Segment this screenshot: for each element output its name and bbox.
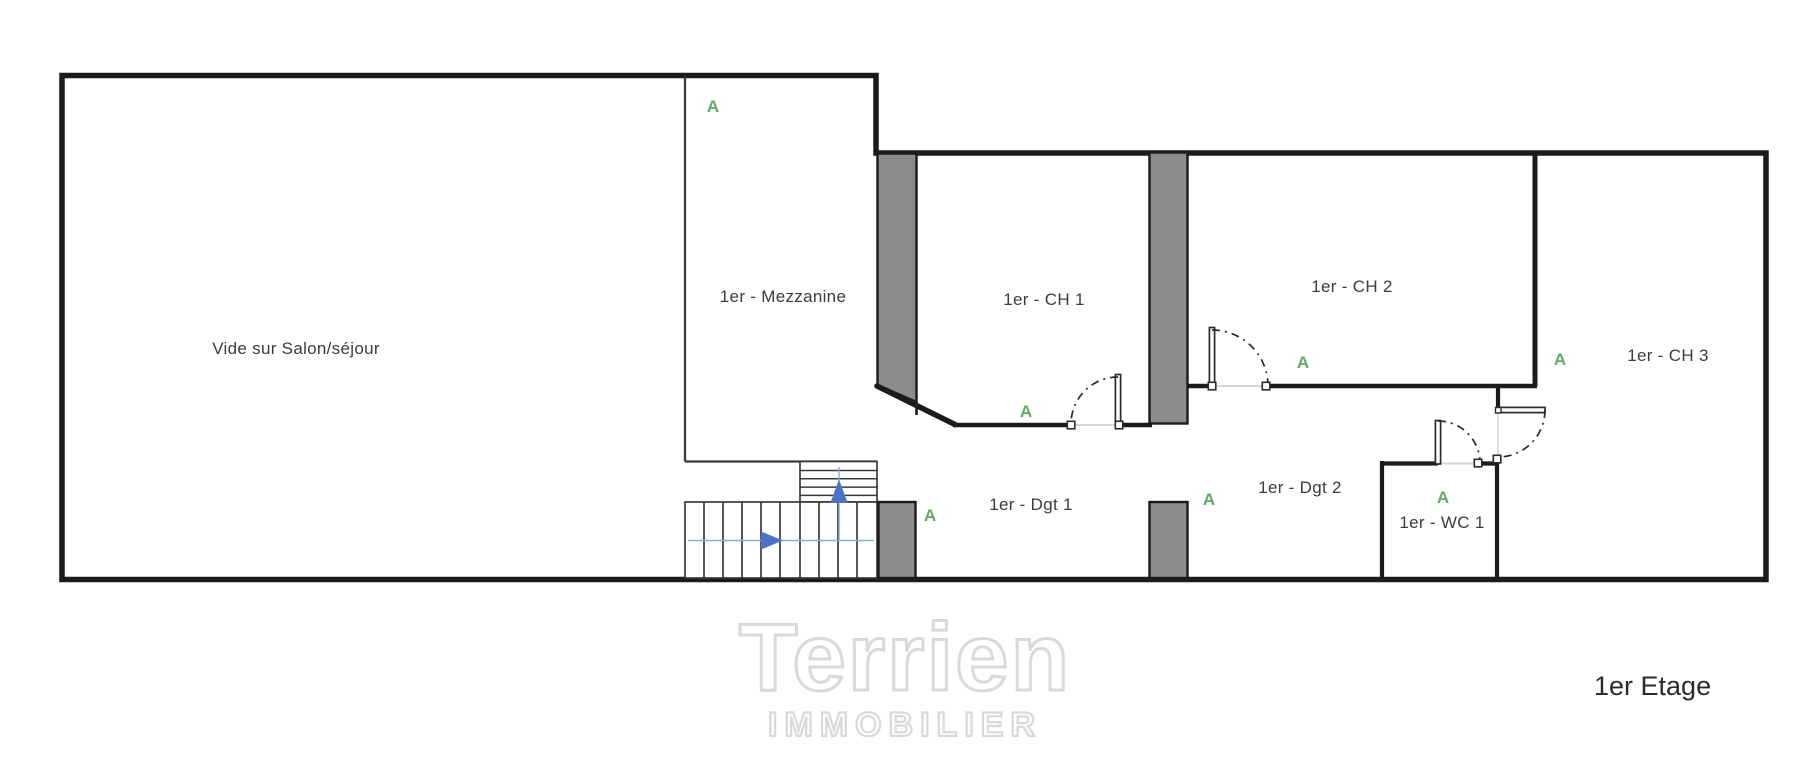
room-label-dgt1: 1er - Dgt 1: [989, 495, 1073, 515]
section-marker-mezzanine: A: [707, 97, 719, 117]
section-marker-ch1: A: [1020, 402, 1032, 422]
floorplan-page: Vide sur Salon/séjour 1er - Mezzanine 1e…: [0, 0, 1820, 766]
room-label-wc1: 1er - WC 1: [1399, 513, 1484, 533]
door-arc-ch1: [1071, 377, 1118, 425]
mezzanine-walls: [685, 76, 877, 462]
doors: [1067, 328, 1545, 467]
floor-title: 1er Etage: [1594, 671, 1711, 702]
gray-wall-stairs: [879, 502, 916, 578]
gray-wall-dgt1-dgt2: [1150, 502, 1188, 578]
room-label-mezzanine: 1er - Mezzanine: [720, 287, 846, 307]
door-wc: [1435, 421, 1500, 467]
section-marker-ch2: A: [1297, 353, 1309, 373]
door-ch3: [1496, 407, 1546, 457]
section-marker-dgt2: A: [1203, 490, 1215, 510]
room-label-ch1: 1er - CH 1: [1003, 290, 1084, 310]
gray-wall-ch1-ch2: [1150, 153, 1188, 424]
room-label-ch2: 1er - CH 2: [1311, 277, 1392, 297]
door-arc-ch2: [1212, 330, 1268, 386]
door-arc-ch3: [1498, 410, 1545, 457]
room-label-ch3: 1er - CH 3: [1627, 346, 1708, 366]
gray-wall-mezzanine-ch1: [878, 154, 917, 403]
stairs: [685, 462, 877, 579]
section-marker-dgt1: A: [924, 506, 936, 526]
room-label-vide-sur-salon-sejour: Vide sur Salon/séjour: [212, 339, 380, 359]
floorplan-drawing: [0, 0, 1820, 766]
room-label-dgt2: 1er - Dgt 2: [1258, 478, 1342, 498]
door-ch2: [1208, 328, 1270, 390]
section-marker-ch3: A: [1554, 350, 1566, 370]
door-arc-wc: [1438, 421, 1480, 463]
door-ch1: [1067, 375, 1123, 429]
section-marker-wc1: A: [1437, 488, 1449, 508]
